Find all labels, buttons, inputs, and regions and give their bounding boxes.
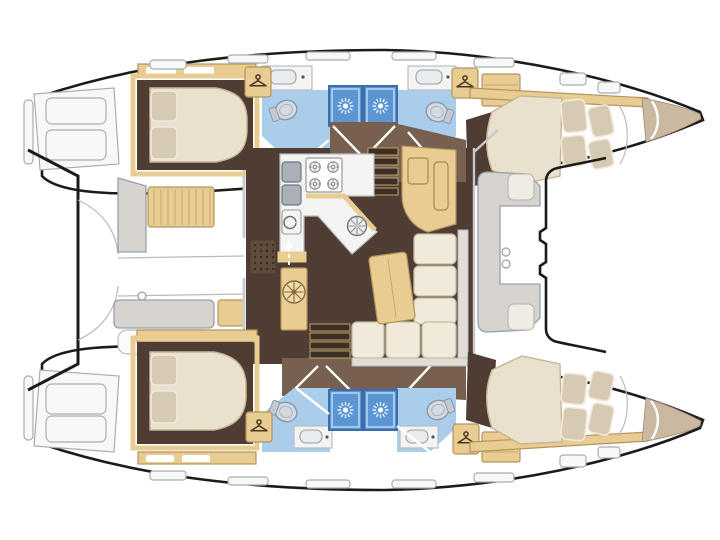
forepeak-locker <box>642 98 701 142</box>
sofa-cushion <box>414 266 456 296</box>
deck-hatch <box>560 455 586 467</box>
stern-window-port-2 <box>46 130 106 160</box>
faucet-dot <box>446 75 449 78</box>
aft-cockpit-bench-cushion <box>148 187 214 227</box>
sofa-cushion <box>414 298 456 324</box>
sofa-cushion <box>352 322 384 358</box>
stair-tread <box>310 324 350 331</box>
deck-hatch <box>560 73 586 85</box>
pillow <box>560 373 587 405</box>
sofa-backrest <box>352 358 468 366</box>
burner-icon <box>310 179 320 189</box>
cup-holder <box>502 260 510 268</box>
faucet-dot <box>325 435 328 438</box>
faucet-dot <box>431 435 434 438</box>
deck-hatch <box>392 52 436 60</box>
pillow <box>151 355 177 385</box>
cabin-aft-starboard <box>133 330 257 464</box>
aft-cockpit-side-seat <box>218 300 244 326</box>
cup-holder <box>502 248 510 256</box>
pillow <box>151 91 177 121</box>
bench-pad <box>508 174 534 200</box>
pillow <box>151 391 177 423</box>
forepeak-locker <box>642 398 701 442</box>
hull-window <box>184 67 214 74</box>
trampoline-boundary <box>540 158 606 352</box>
deck-hatch <box>598 82 620 93</box>
pillow <box>560 99 587 133</box>
double-bed <box>487 356 562 444</box>
round-fixture-cabinet <box>281 268 307 330</box>
cockpit-seam-lines <box>118 256 244 296</box>
aft-cockpit-seat-back <box>118 178 146 252</box>
deck-fitting-ring <box>138 292 146 300</box>
counter-wood-end <box>280 254 304 260</box>
galley-sink <box>282 185 301 205</box>
deck-hatch <box>228 477 268 485</box>
swim-step-starboard <box>24 376 33 440</box>
cabin-aft-port <box>133 64 257 174</box>
stair-tread <box>310 333 350 340</box>
deck-hatch <box>474 58 514 67</box>
wardrobe-box <box>246 412 272 442</box>
sofa-cushion <box>422 322 456 358</box>
faucet-dot <box>301 75 304 78</box>
washbasin <box>300 430 322 443</box>
burner-icon <box>328 179 338 189</box>
aft-cockpit <box>114 168 244 354</box>
hull-window <box>182 455 210 462</box>
deck-hatch <box>306 480 350 488</box>
davit-line-starboard <box>78 286 118 340</box>
pillow <box>560 407 587 441</box>
floor-plan-page: Catamaran interior layout plan - top vie… <box>0 0 720 540</box>
galley-appliance <box>282 210 301 234</box>
stern-window-starboard-2 <box>46 384 106 414</box>
burner-icon <box>310 162 320 172</box>
deck-hatch <box>150 60 186 69</box>
deck-hatch <box>392 480 436 488</box>
pillow <box>587 138 614 170</box>
galley-sink <box>282 162 301 182</box>
salon <box>246 122 498 400</box>
sofa-backrest <box>458 230 468 360</box>
catamaran-floor-plan: Catamaran interior layout plan - top vie… <box>0 0 720 540</box>
burner-icon <box>328 162 338 172</box>
pillow <box>587 370 614 402</box>
stern-window-starboard-1 <box>46 416 106 442</box>
stair-tread <box>310 342 350 349</box>
deck-hatch <box>306 52 350 60</box>
swim-step-port <box>24 100 33 164</box>
pillow <box>151 127 177 159</box>
deck-hatch <box>150 471 186 480</box>
washbasin <box>270 70 296 84</box>
hull-window <box>146 455 174 462</box>
deck-hatch <box>474 473 514 482</box>
wardrobe-aft-starboard <box>246 412 272 442</box>
sofa-cushion <box>414 234 456 264</box>
stern-window-port-1 <box>46 98 106 124</box>
stair-tread <box>310 351 350 358</box>
round-sink <box>348 217 367 236</box>
davit-line-port <box>78 200 118 254</box>
entry-floor-grate <box>250 240 276 274</box>
bench-pad <box>508 304 534 330</box>
stern-area <box>24 88 119 452</box>
deck-hatch <box>598 447 620 458</box>
sofa-cushion <box>386 322 420 358</box>
wardrobe-aft-port <box>245 67 271 97</box>
sideboard-cabinet <box>402 146 456 232</box>
wardrobe-box <box>245 67 271 97</box>
washbasin <box>416 70 442 84</box>
deck-hatch <box>228 55 268 63</box>
aft-cockpit-lounge <box>114 300 214 328</box>
